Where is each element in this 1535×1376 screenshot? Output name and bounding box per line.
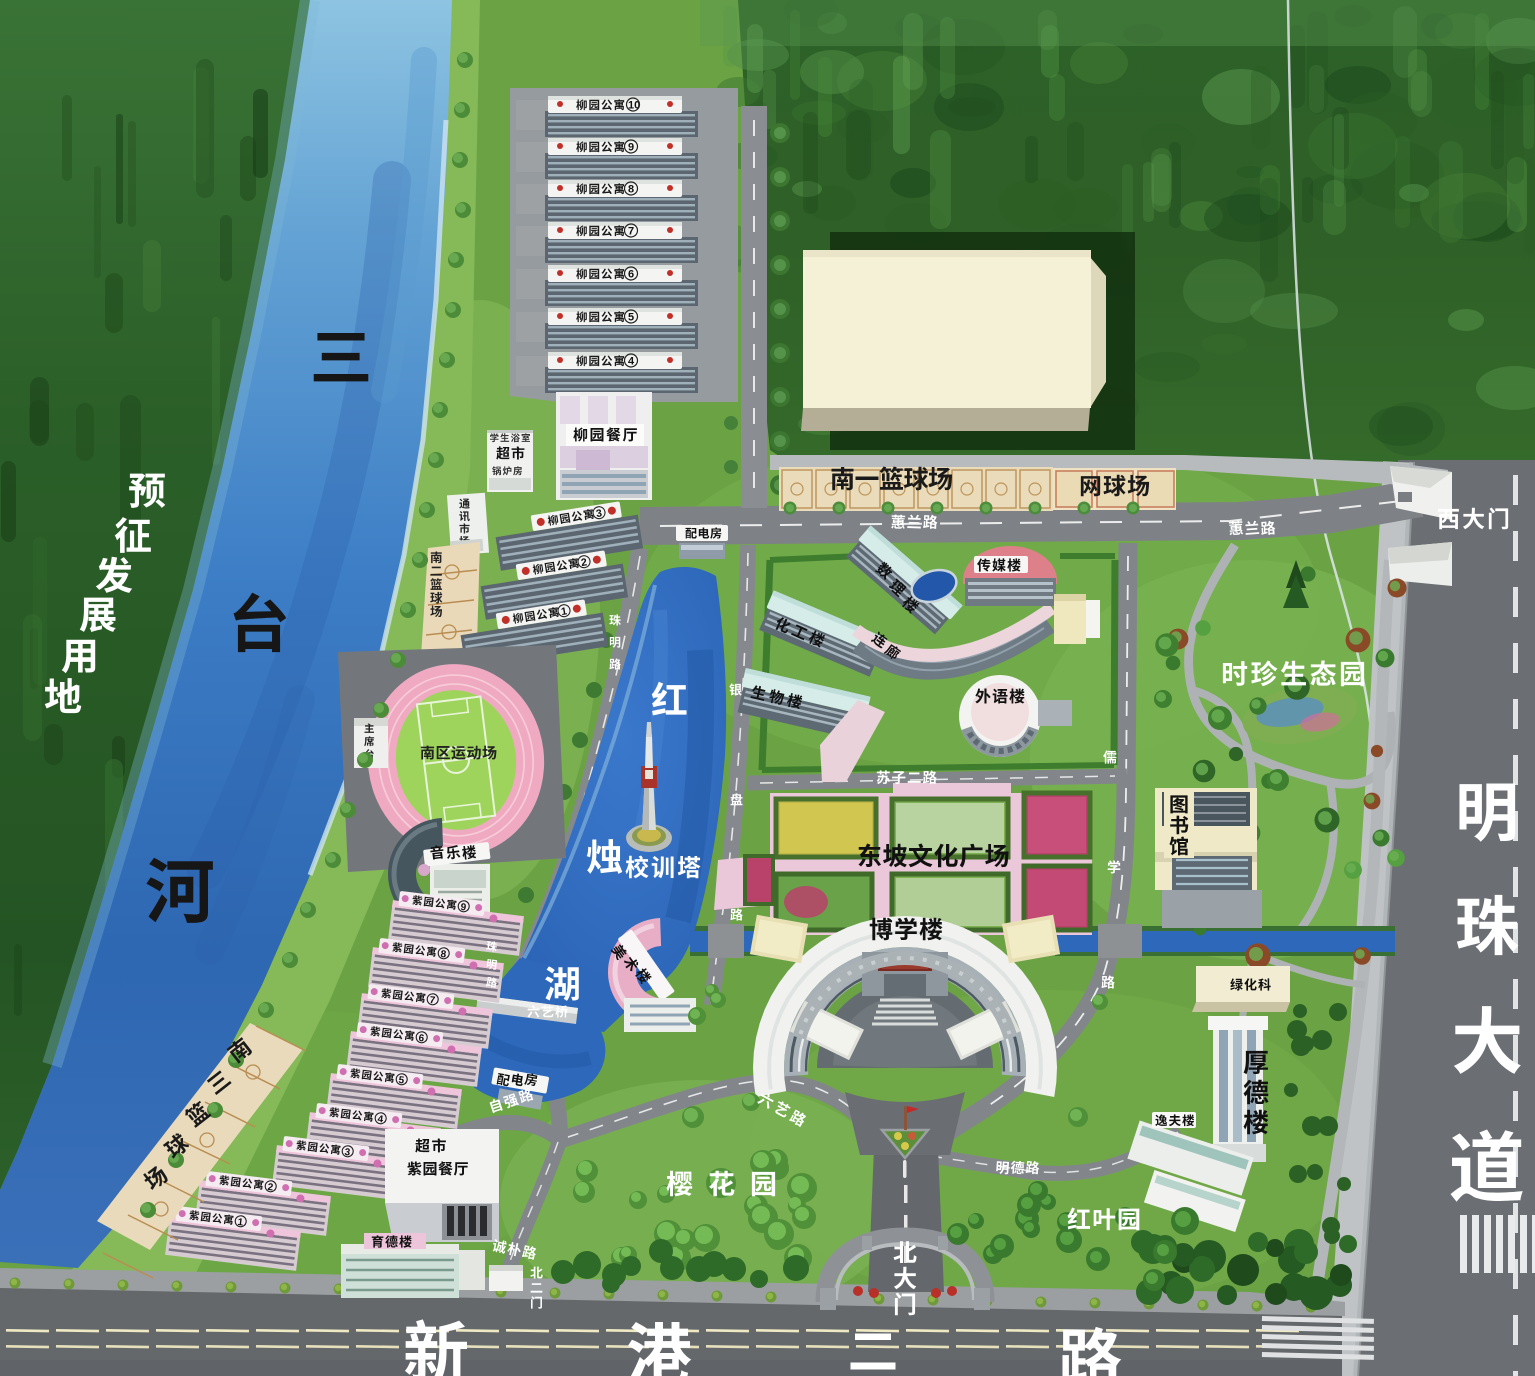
svg-text:9: 9 <box>628 142 634 154</box>
svg-text:8: 8 <box>628 184 634 196</box>
svg-text:7: 7 <box>628 226 634 238</box>
svg-text:6: 6 <box>628 269 634 281</box>
svg-text:5: 5 <box>628 312 634 324</box>
